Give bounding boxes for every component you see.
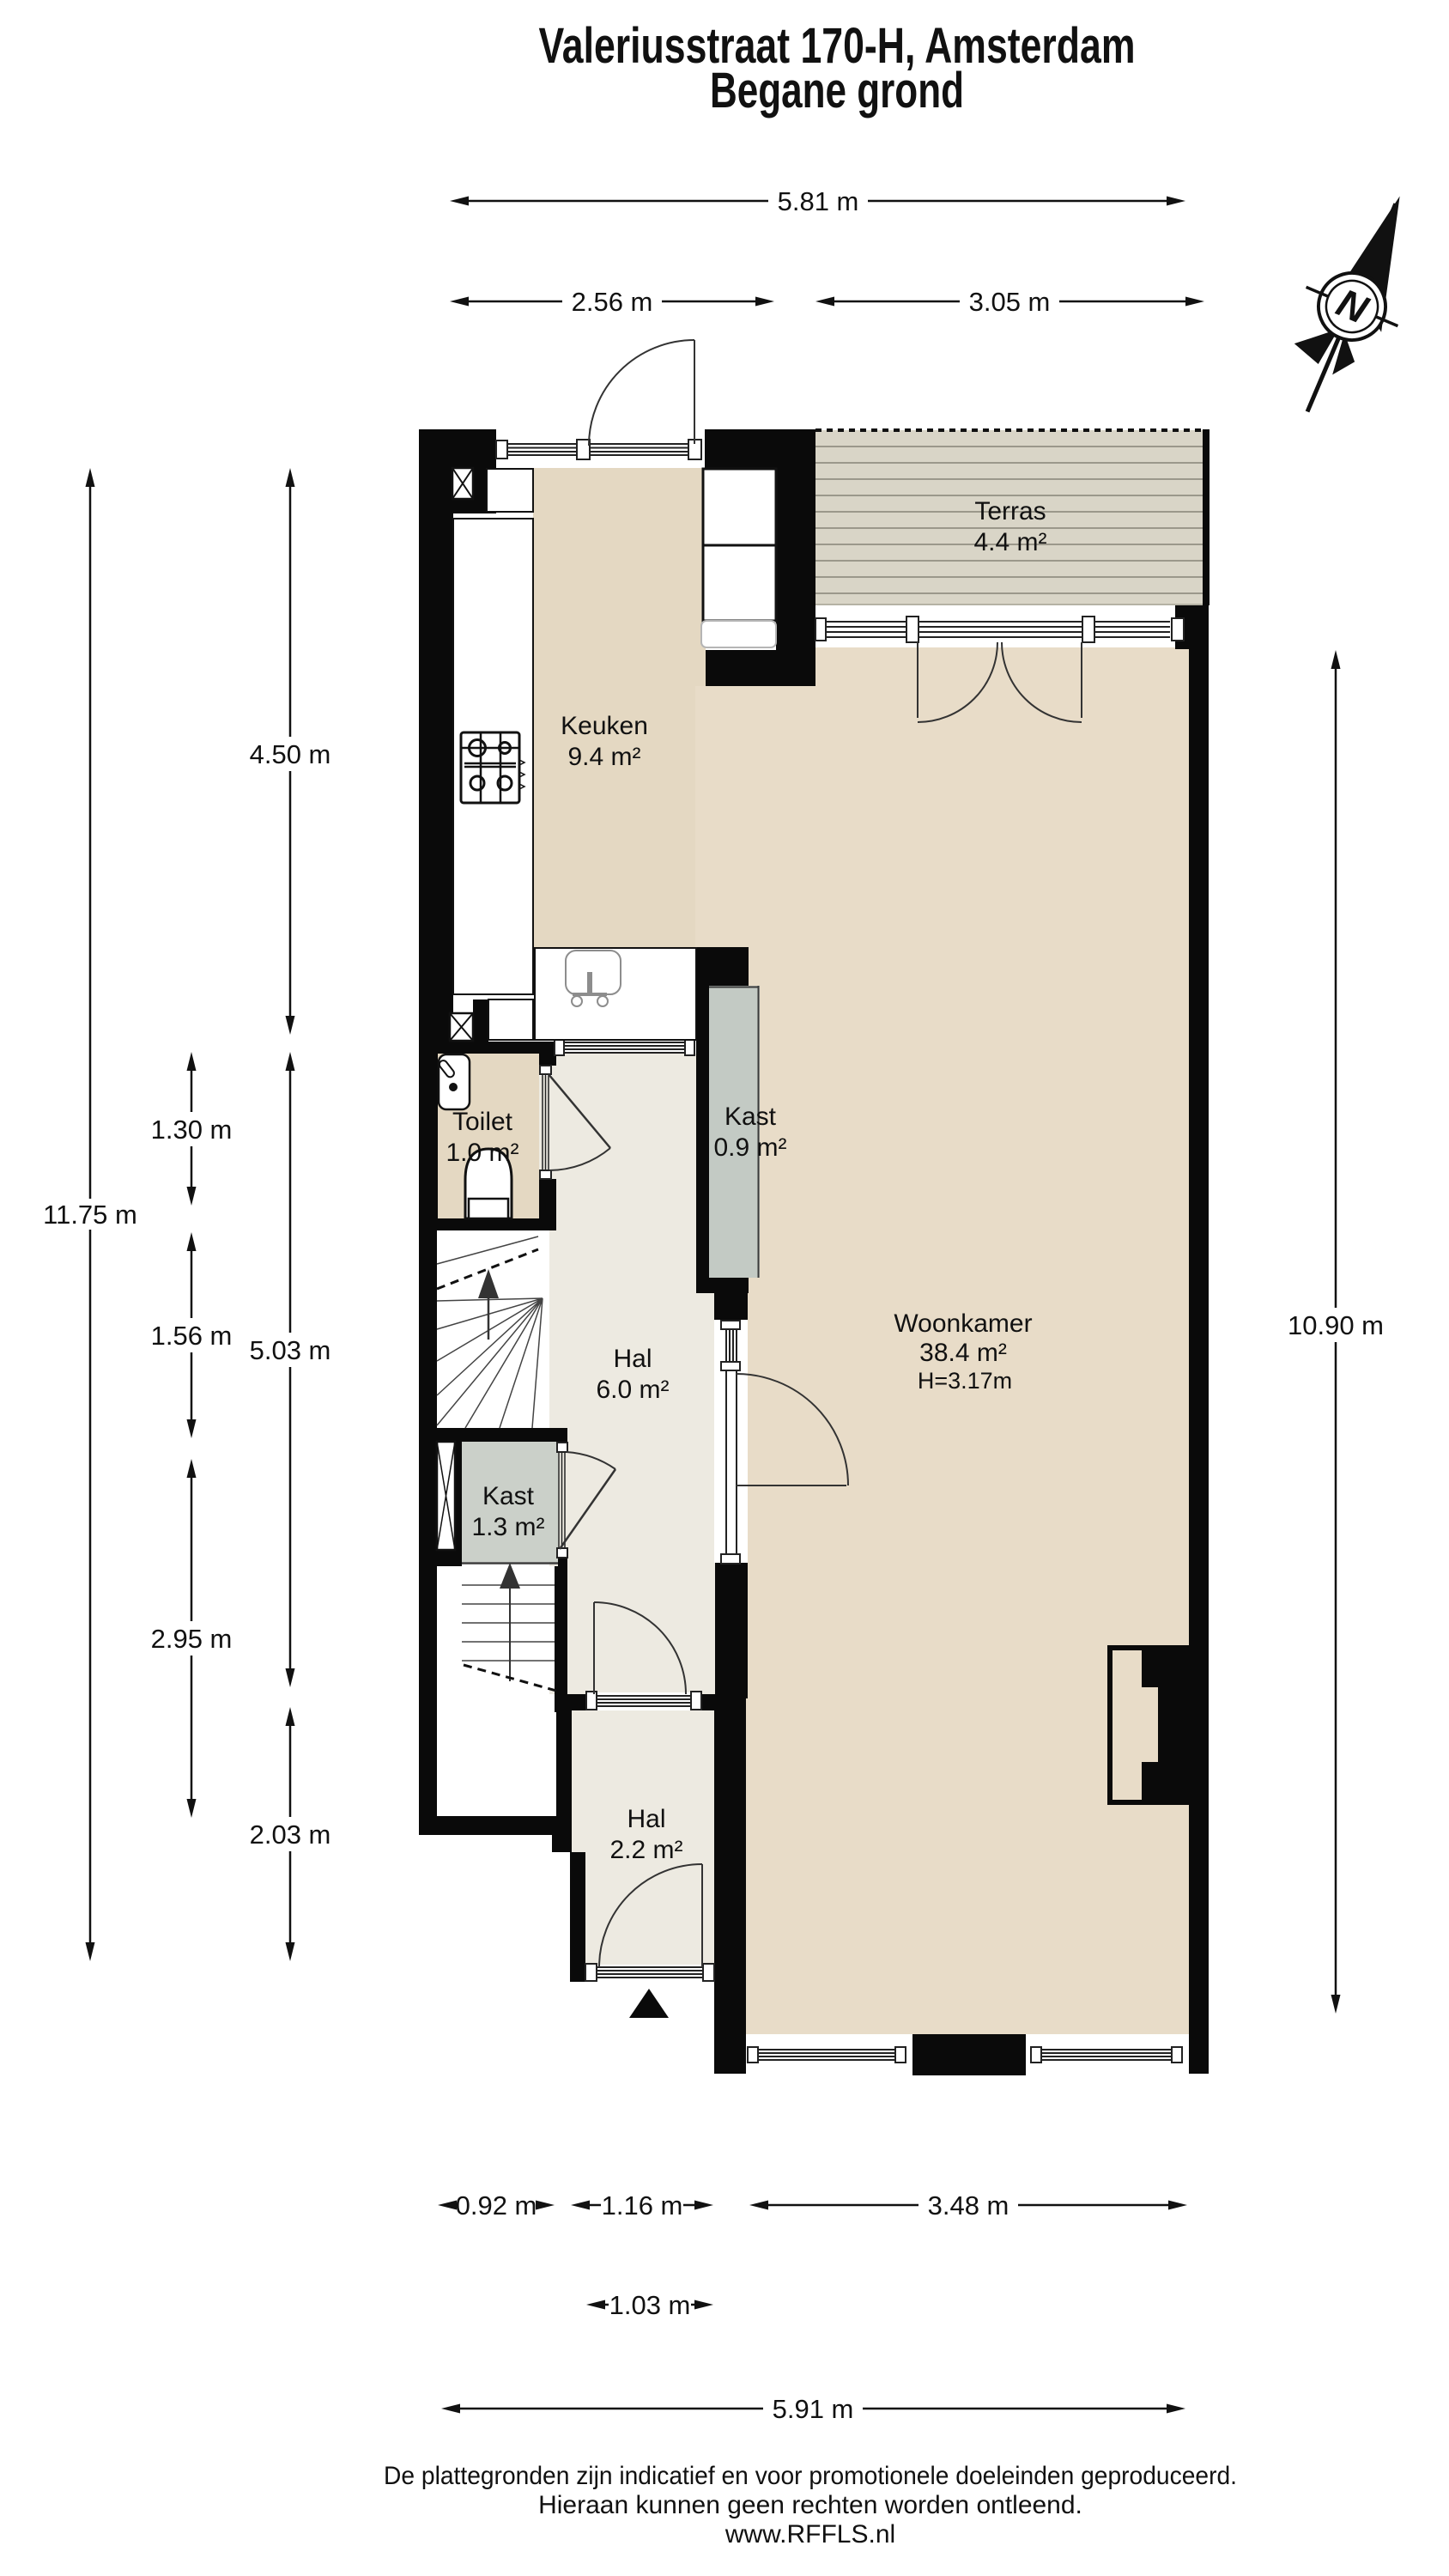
svg-text:9.4 m²: 9.4 m² [567,743,640,771]
svg-text:Keuken: Keuken [561,712,648,740]
svg-text:2.03 m: 2.03 m [250,1820,331,1850]
svg-text:Hieraan kunnen geen rechten wo: Hieraan kunnen geen rechten worden ontle… [538,2491,1082,2519]
svg-text:1.3 m²: 1.3 m² [471,1513,544,1541]
svg-text:4.4 m²: 4.4 m² [973,528,1046,556]
svg-text:Terras: Terras [974,497,1046,526]
svg-text:0.92 m: 0.92 m [456,2190,537,2221]
svg-text:2.2 m²: 2.2 m² [609,1836,682,1864]
svg-text:1.16 m: 1.16 m [602,2190,683,2221]
svg-text:1.03 m: 1.03 m [609,2290,691,2320]
svg-text:3.48 m: 3.48 m [928,2190,1009,2221]
svg-text:H=3.17m: H=3.17m [918,1368,1012,1394]
svg-text:Hal: Hal [613,1345,652,1373]
svg-text:5.81 m: 5.81 m [778,186,859,216]
svg-text:Toilet: Toilet [452,1108,513,1136]
svg-text:5.03 m: 5.03 m [250,1335,331,1365]
svg-text:Hal: Hal [627,1805,665,1833]
svg-text:3.05 m: 3.05 m [969,287,1051,317]
svg-text:De plattegronden zijn indicati: De plattegronden zijn indicatief en voor… [384,2462,1237,2490]
svg-text:1.56 m: 1.56 m [151,1321,233,1351]
svg-text:Begane grond: Begane grond [710,63,964,118]
svg-text:0.9 m²: 0.9 m² [713,1133,786,1162]
svg-text:Kast: Kast [724,1103,777,1131]
svg-text:1.0 m²: 1.0 m² [446,1139,518,1167]
svg-text:10.90 m: 10.90 m [1288,1310,1384,1340]
svg-text:5.91 m: 5.91 m [773,2394,854,2424]
svg-text:11.75 m: 11.75 m [43,1200,137,1230]
svg-text:2.95 m: 2.95 m [151,1624,233,1654]
svg-text:38.4 m²: 38.4 m² [919,1339,1007,1367]
svg-text:Kast: Kast [482,1482,535,1510]
svg-text:6.0 m²: 6.0 m² [596,1376,669,1404]
svg-text:1.30 m: 1.30 m [151,1115,233,1145]
svg-text:www.RFFLS.nl: www.RFFLS.nl [724,2520,895,2549]
svg-text:4.50 m: 4.50 m [250,739,331,769]
svg-text:Woonkamer: Woonkamer [894,1309,1032,1338]
svg-text:2.56 m: 2.56 m [572,287,653,317]
